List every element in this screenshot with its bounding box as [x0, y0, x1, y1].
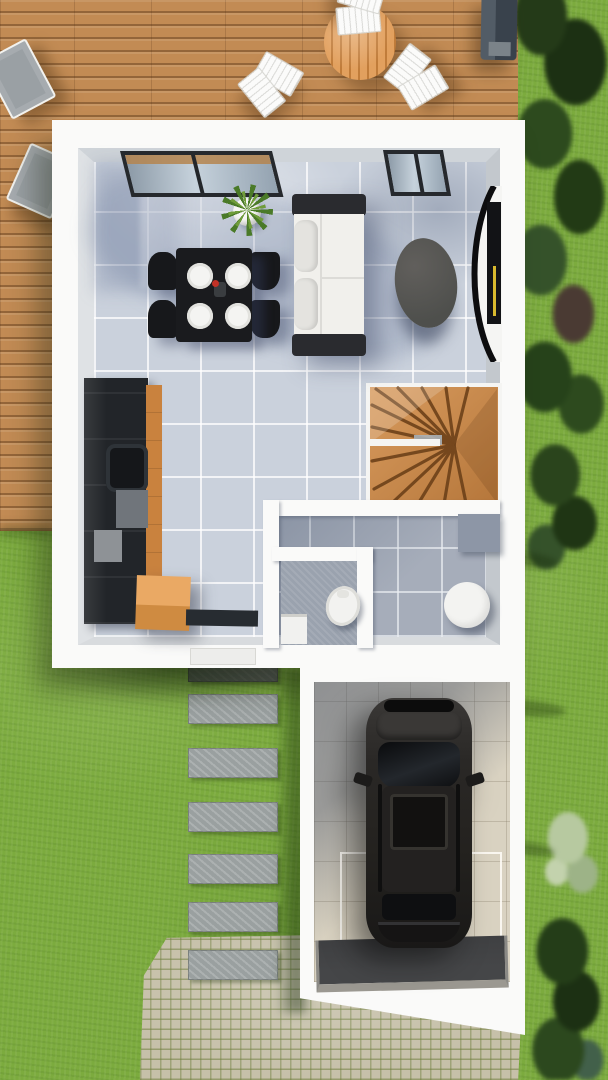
paver-slab — [188, 950, 278, 980]
paver-slab — [188, 802, 278, 832]
paver-slab — [188, 748, 278, 778]
winder-staircase — [366, 383, 502, 509]
grill-shelf — [489, 42, 511, 56]
plate — [187, 263, 213, 289]
hallway-left-wall — [263, 500, 279, 648]
sofa-seam — [320, 214, 322, 336]
car-roof-rail — [378, 784, 382, 892]
barbecue-grill — [480, 0, 517, 60]
paver-slab — [188, 854, 278, 884]
window-deck-reflection — [125, 155, 271, 164]
kitchen-mat — [94, 530, 122, 562]
sofa-back-cushion — [294, 220, 318, 272]
plate — [187, 303, 213, 329]
car-sunroof — [390, 794, 448, 850]
hedge — [512, 0, 608, 440]
kitchen-sink — [106, 444, 148, 492]
bathroom-cabinet — [458, 514, 500, 552]
deck-edge-shadow — [0, 526, 52, 536]
car-windshield — [378, 742, 460, 788]
deck-chair — [335, 0, 387, 37]
centerpiece-flower — [212, 280, 219, 287]
dining-chair — [148, 252, 178, 290]
suv-car — [366, 698, 472, 948]
car-roof-rail — [456, 784, 460, 892]
doormat — [186, 609, 258, 626]
dining-chair — [148, 300, 178, 338]
window — [383, 150, 451, 196]
wood-crate — [135, 575, 191, 631]
floor-plan-render — [0, 0, 608, 1080]
car-tailgate — [378, 922, 460, 942]
kitchen-counter-section — [116, 490, 148, 528]
dining-chair — [250, 300, 280, 338]
dining-chair — [250, 252, 280, 290]
tv-accent-strip — [493, 266, 496, 316]
plate — [225, 263, 251, 289]
round-basin — [444, 582, 490, 628]
sofa-armrest — [292, 194, 366, 216]
car-rear-window — [382, 894, 456, 920]
kitchen-wood-edge — [146, 385, 162, 581]
sofa-back-cushion — [294, 278, 318, 330]
entry-door — [190, 648, 256, 665]
potted-plant-leaves-inner — [228, 191, 266, 229]
paver-slab — [188, 902, 278, 932]
sofa-armrest — [292, 334, 366, 356]
plate — [225, 303, 251, 329]
wc-step — [281, 614, 307, 644]
sofa-seam — [320, 277, 364, 279]
toilet-lid — [337, 590, 349, 598]
sofa — [292, 194, 366, 356]
car-hood — [376, 712, 462, 740]
tree-cluster — [525, 915, 608, 1080]
car-grille — [384, 700, 454, 712]
